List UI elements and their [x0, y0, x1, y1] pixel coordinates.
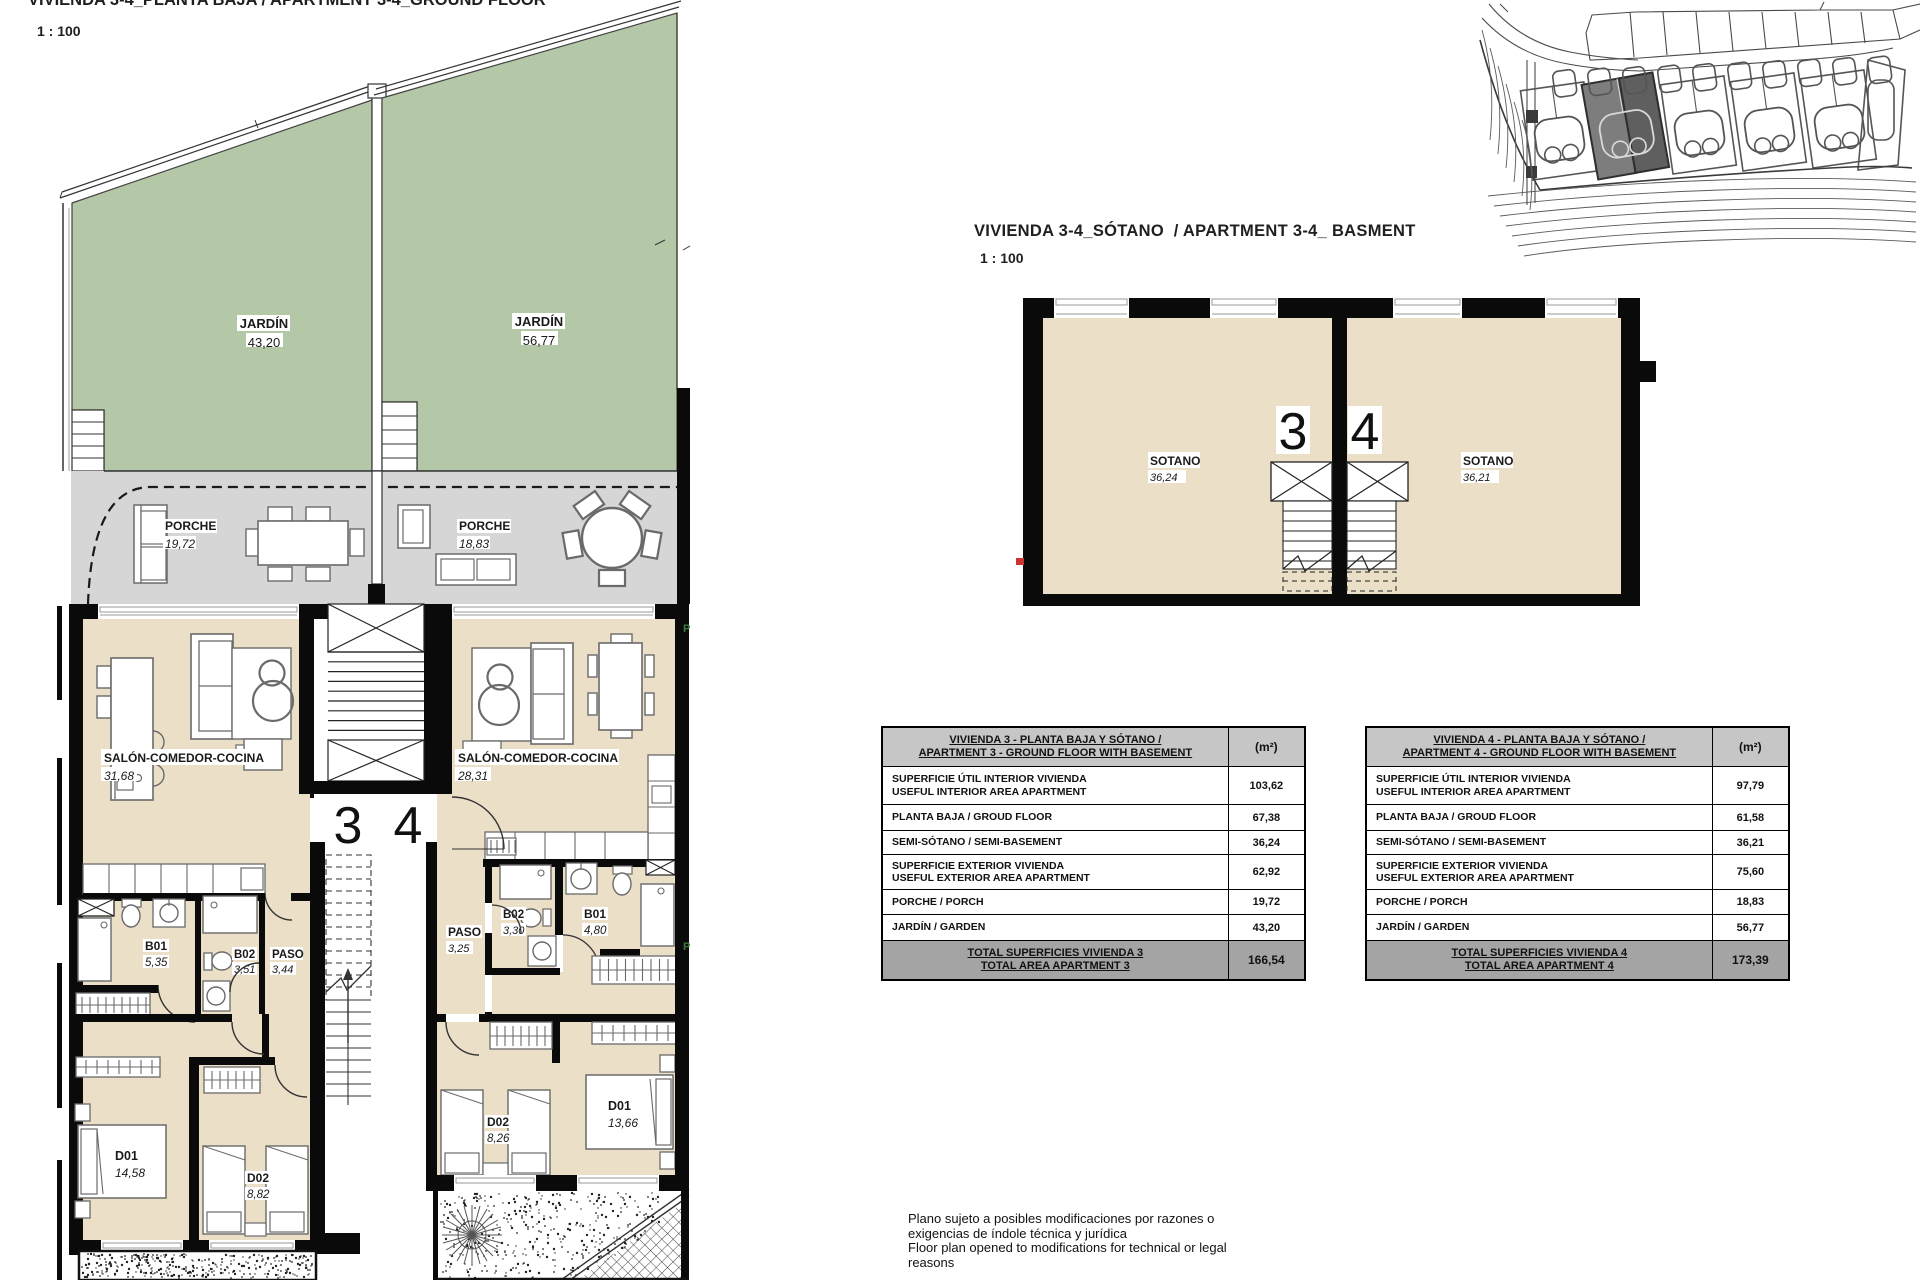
- svg-text:SOTANO: SOTANO: [1150, 454, 1200, 468]
- svg-text:B01: B01: [584, 907, 606, 921]
- svg-text:JARDÍN: JARDÍN: [240, 316, 288, 331]
- svg-text:3,25: 3,25: [448, 943, 470, 955]
- svg-text:4: 4: [1351, 403, 1380, 461]
- svg-text:56,77: 56,77: [523, 333, 556, 348]
- svg-text:3,44: 3,44: [272, 964, 293, 976]
- svg-text:D01: D01: [608, 1099, 631, 1113]
- svg-text:13,66: 13,66: [608, 1116, 638, 1130]
- svg-text:3,30: 3,30: [503, 925, 525, 937]
- svg-text:4,80: 4,80: [584, 925, 607, 937]
- svg-text:36,21: 36,21: [1463, 472, 1491, 484]
- svg-text:5,35: 5,35: [145, 957, 168, 969]
- svg-text:8,82: 8,82: [247, 1189, 270, 1201]
- svg-text:31,68: 31,68: [104, 769, 134, 783]
- svg-text:28,31: 28,31: [457, 769, 488, 783]
- svg-text:P: P: [683, 623, 690, 635]
- svg-text:19,72: 19,72: [165, 537, 195, 551]
- svg-text:3: 3: [1279, 403, 1308, 461]
- svg-text:B02: B02: [234, 949, 255, 961]
- svg-text:PASO: PASO: [448, 925, 481, 939]
- svg-text:18,83: 18,83: [459, 537, 489, 551]
- svg-text:PORCHE: PORCHE: [459, 519, 510, 533]
- svg-text:3,51: 3,51: [234, 964, 255, 976]
- svg-text:SALÓN-COMEDOR-COCINA: SALÓN-COMEDOR-COCINA: [458, 750, 618, 765]
- svg-text:4: 4: [394, 797, 423, 855]
- svg-text:8,26: 8,26: [487, 1133, 510, 1145]
- svg-text:36,24: 36,24: [1150, 472, 1178, 484]
- svg-text:PORCHE: PORCHE: [165, 519, 216, 533]
- svg-text:JARDÍN: JARDÍN: [515, 314, 563, 329]
- svg-text:D02: D02: [487, 1115, 509, 1129]
- svg-text:SOTANO: SOTANO: [1463, 454, 1513, 468]
- svg-text:43,20: 43,20: [248, 335, 281, 350]
- svg-text:D02: D02: [247, 1171, 269, 1185]
- svg-text:PASO: PASO: [272, 949, 304, 961]
- svg-text:D01: D01: [115, 1149, 138, 1163]
- svg-text:14,58: 14,58: [115, 1166, 145, 1180]
- svg-text:P: P: [683, 941, 690, 953]
- svg-text:3: 3: [334, 797, 363, 855]
- svg-text:SALÓN-COMEDOR-COCINA: SALÓN-COMEDOR-COCINA: [104, 750, 264, 765]
- svg-text:B01: B01: [145, 939, 167, 953]
